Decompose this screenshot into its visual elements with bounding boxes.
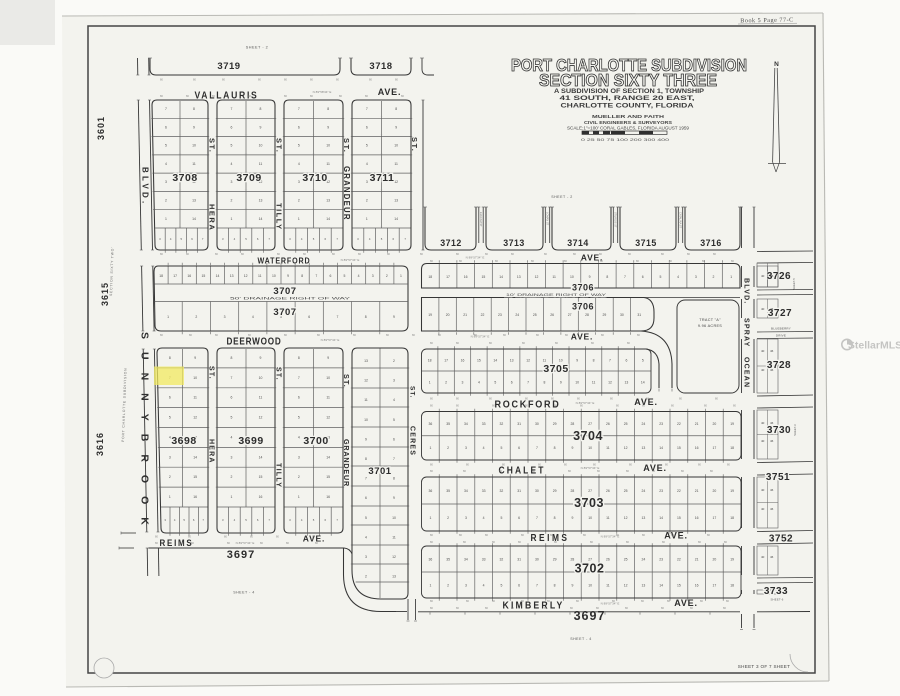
svg-text:5: 5	[366, 144, 368, 148]
svg-text:7: 7	[231, 376, 233, 380]
svg-text:4: 4	[298, 162, 300, 166]
svg-text:3710: 3710	[302, 172, 327, 184]
svg-text:···: ···	[245, 206, 248, 210]
svg-text:2: 2	[365, 575, 367, 579]
svg-text:29: 29	[553, 422, 557, 426]
svg-text:12: 12	[535, 275, 539, 279]
svg-text:6: 6	[231, 396, 233, 400]
svg-text:9: 9	[393, 315, 395, 319]
svg-text:···: ···	[245, 151, 248, 155]
svg-text:8: 8	[554, 516, 556, 520]
svg-text:25: 25	[624, 557, 628, 561]
svg-text:31: 31	[637, 313, 641, 317]
svg-text:···: ···	[245, 503, 248, 507]
svg-text:9: 9	[193, 125, 195, 129]
svg-text:ST.: ST.	[208, 138, 217, 153]
svg-text:3703: 3703	[574, 496, 604, 510]
svg-text:46: 46	[770, 421, 774, 425]
svg-text:10: 10	[588, 446, 592, 450]
svg-text:22: 22	[481, 313, 485, 317]
svg-text:1: 1	[165, 217, 167, 221]
svg-text:10: 10	[326, 144, 330, 148]
svg-text:3700: 3700	[303, 435, 328, 447]
svg-text:ST.: ST.	[409, 386, 416, 398]
svg-text:13: 13	[517, 275, 521, 279]
svg-text:32: 32	[500, 422, 504, 426]
svg-text:StellarMLS: StellarMLS	[848, 340, 900, 352]
svg-text:20: 20	[446, 313, 450, 317]
svg-text:8: 8	[554, 446, 556, 450]
svg-text:16: 16	[326, 495, 330, 499]
svg-text:16: 16	[695, 583, 699, 587]
svg-text:AVE.: AVE.	[643, 463, 667, 473]
svg-text:···: ···	[245, 188, 248, 192]
svg-text:15: 15	[482, 275, 486, 279]
svg-text:6: 6	[298, 125, 300, 129]
svg-text:11: 11	[606, 446, 610, 450]
svg-text:3: 3	[298, 180, 300, 184]
svg-text:16: 16	[193, 495, 197, 499]
svg-text:6: 6	[165, 125, 167, 129]
svg-text:17: 17	[713, 516, 717, 520]
svg-text:REIMS: REIMS	[160, 538, 194, 548]
svg-text:46: 46	[770, 488, 774, 492]
svg-text:12: 12	[364, 379, 368, 383]
svg-text:3708: 3708	[172, 172, 197, 184]
svg-text:31: 31	[517, 489, 521, 493]
svg-text:1: 1	[231, 495, 233, 499]
svg-text:SECTION SIXTY THREE: SECTION SIXTY THREE	[539, 70, 717, 90]
svg-text:12: 12	[624, 446, 628, 450]
svg-text:29: 29	[603, 313, 607, 317]
svg-text:11: 11	[606, 583, 610, 587]
svg-text:AVE.: AVE.	[674, 598, 698, 608]
svg-text:24: 24	[515, 313, 519, 317]
svg-text:6: 6	[518, 583, 520, 587]
svg-text:···: ···	[179, 224, 182, 228]
svg-text:23: 23	[659, 422, 663, 426]
svg-text:N 89°57'34" E: N 89°57'34" E	[236, 541, 255, 545]
svg-text:6: 6	[169, 396, 171, 400]
svg-text:40: 40	[761, 307, 765, 311]
svg-text:3: 3	[465, 583, 467, 587]
svg-text:36: 36	[429, 422, 433, 426]
svg-text:3705: 3705	[543, 363, 568, 375]
svg-text:9: 9	[571, 516, 573, 520]
svg-text:3711: 3711	[370, 172, 395, 184]
svg-text:10' DRAINAGE RIGHT OF WAY: 10' DRAINAGE RIGHT OF WAY	[506, 293, 607, 297]
svg-text:19: 19	[730, 557, 734, 561]
svg-text:21: 21	[463, 313, 467, 317]
svg-text:2: 2	[386, 274, 388, 278]
svg-text:4: 4	[231, 435, 233, 439]
svg-text:30: 30	[535, 557, 539, 561]
svg-text:22: 22	[677, 422, 681, 426]
svg-text:11: 11	[392, 535, 396, 539]
svg-text:4: 4	[478, 380, 480, 384]
svg-text:AVE.: AVE.	[378, 87, 402, 97]
svg-text:9.96 ACRES: 9.96 ACRES	[698, 324, 722, 328]
svg-text:8: 8	[606, 275, 608, 279]
svg-text:1: 1	[400, 274, 402, 278]
svg-text:18: 18	[730, 516, 734, 520]
svg-text:11: 11	[364, 398, 368, 402]
svg-text:N 89°58'34" E: N 89°58'34" E	[313, 90, 332, 94]
svg-text:ST.: ST.	[342, 138, 351, 153]
svg-text:3: 3	[231, 455, 233, 459]
svg-text:3: 3	[365, 555, 367, 559]
svg-text:13: 13	[364, 359, 368, 363]
svg-text:24: 24	[642, 489, 646, 493]
svg-text:9: 9	[560, 380, 562, 384]
svg-text:3719: 3719	[217, 61, 240, 72]
svg-text:23: 23	[498, 313, 502, 317]
svg-text:···: ···	[312, 503, 315, 507]
svg-text:16: 16	[464, 275, 468, 279]
svg-text:SHEET - 4: SHEET - 4	[570, 637, 592, 641]
svg-text:32: 32	[500, 489, 504, 493]
svg-text:18: 18	[428, 358, 432, 362]
svg-text:46: 46	[770, 368, 774, 372]
svg-text:1: 1	[429, 446, 431, 450]
svg-text:3730: 3730	[767, 425, 791, 436]
svg-text:25: 25	[533, 313, 537, 317]
svg-text:4: 4	[483, 583, 485, 587]
svg-text:5: 5	[494, 380, 496, 384]
svg-text:40: 40	[761, 274, 765, 278]
svg-text:1: 1	[298, 495, 300, 499]
svg-text:10: 10	[259, 144, 263, 148]
svg-text:46: 46	[770, 349, 774, 353]
svg-text:···: ···	[179, 114, 182, 118]
svg-text:···: ···	[312, 206, 315, 210]
svg-text:18: 18	[159, 274, 163, 278]
svg-text:4: 4	[365, 535, 367, 539]
svg-text:···: ···	[312, 483, 315, 487]
svg-text:15: 15	[202, 274, 206, 278]
svg-text:SHEET - 4: SHEET - 4	[233, 591, 255, 595]
svg-text:9: 9	[576, 358, 578, 362]
svg-text:3714: 3714	[567, 238, 589, 248]
svg-text:36: 36	[429, 557, 433, 561]
svg-text:···: ···	[312, 384, 315, 388]
svg-text:27: 27	[588, 422, 592, 426]
svg-text:···: ···	[181, 483, 184, 487]
svg-text:2: 2	[445, 380, 447, 384]
svg-text:14: 14	[326, 455, 330, 459]
svg-text:BLVD.: BLVD.	[743, 278, 750, 304]
svg-text:MUELLER AND FAITH: MUELLER AND FAITH	[592, 114, 665, 119]
svg-text:6: 6	[642, 275, 644, 279]
svg-text:26: 26	[606, 557, 610, 561]
svg-text:9: 9	[194, 356, 196, 360]
svg-text:10: 10	[588, 516, 592, 520]
svg-text:1: 1	[366, 217, 368, 221]
svg-text:A SUBDIVISION OF SECTION 1, TO: A SUBDIVISION OF SECTION 1, TOWNSHIP	[554, 88, 705, 95]
svg-text:46: 46	[770, 507, 774, 511]
svg-text:29: 29	[553, 557, 557, 561]
svg-text:···: ···	[312, 133, 315, 137]
svg-text:17: 17	[713, 583, 717, 587]
svg-text:3601: 3601	[96, 116, 106, 140]
svg-text:14: 14	[326, 217, 330, 221]
svg-text:46: 46	[770, 439, 774, 443]
svg-text:2: 2	[393, 359, 395, 363]
svg-text:3: 3	[165, 180, 167, 184]
svg-text:HERA: HERA	[208, 204, 217, 231]
svg-text:3: 3	[465, 516, 467, 520]
svg-text:10: 10	[392, 516, 396, 520]
svg-text:3706: 3706	[572, 283, 594, 293]
svg-text:11: 11	[394, 162, 398, 166]
svg-text:2: 2	[366, 199, 368, 203]
svg-text:8: 8	[395, 107, 397, 111]
svg-text:15: 15	[326, 475, 330, 479]
svg-text:3712: 3712	[440, 238, 462, 248]
svg-text:3: 3	[393, 379, 395, 383]
svg-text:3: 3	[169, 455, 171, 459]
svg-text:3701: 3701	[368, 466, 391, 477]
svg-text:SHEET-6: SHEET-6	[793, 424, 797, 436]
svg-text:4: 4	[252, 315, 254, 319]
svg-text:AVE.: AVE.	[664, 531, 688, 541]
svg-text:36: 36	[429, 489, 433, 493]
svg-text:13: 13	[510, 358, 514, 362]
svg-text:4: 4	[677, 275, 679, 279]
svg-text:7: 7	[315, 274, 317, 278]
svg-text:ST.: ST.	[410, 137, 419, 152]
svg-text:···: ···	[245, 463, 248, 467]
svg-text:8: 8	[231, 356, 233, 360]
svg-text:7: 7	[298, 376, 300, 380]
svg-text:23: 23	[659, 557, 663, 561]
svg-text:···: ···	[312, 188, 315, 192]
svg-text:8: 8	[193, 107, 195, 111]
svg-text:···: ···	[380, 224, 383, 228]
svg-text:1: 1	[730, 275, 732, 279]
svg-text:14: 14	[216, 274, 220, 278]
svg-text:11: 11	[259, 162, 263, 166]
svg-text:18: 18	[730, 583, 734, 587]
svg-text:9: 9	[287, 274, 289, 278]
svg-text:13: 13	[642, 516, 646, 520]
svg-text:14: 14	[641, 380, 645, 384]
svg-text:28: 28	[571, 422, 575, 426]
svg-text:3699: 3699	[238, 435, 263, 447]
svg-text:6: 6	[625, 358, 627, 362]
svg-text:2: 2	[169, 475, 171, 479]
svg-text:8: 8	[393, 477, 395, 481]
svg-text:6: 6	[393, 437, 395, 441]
svg-text:7: 7	[527, 380, 529, 384]
svg-text:35: 35	[446, 489, 450, 493]
svg-text:···: ···	[312, 404, 315, 408]
svg-text:12: 12	[259, 416, 263, 420]
svg-text:25: 25	[624, 422, 628, 426]
svg-text:10: 10	[575, 380, 579, 384]
svg-text:3: 3	[298, 455, 300, 459]
svg-text:CATALINA ST: CATALINA ST	[679, 212, 683, 229]
svg-text:11: 11	[592, 380, 596, 384]
svg-text:4: 4	[165, 162, 167, 166]
svg-text:5: 5	[298, 144, 300, 148]
svg-text:15: 15	[677, 446, 681, 450]
svg-text:7: 7	[624, 275, 626, 279]
svg-text:31: 31	[517, 557, 521, 561]
svg-text:7: 7	[298, 107, 300, 111]
svg-text:15: 15	[477, 358, 481, 362]
svg-text:7: 7	[393, 457, 395, 461]
svg-text:33: 33	[482, 489, 486, 493]
svg-text:32: 32	[500, 557, 504, 561]
svg-text:···: ···	[380, 133, 383, 137]
svg-text:5: 5	[500, 516, 502, 520]
svg-text:8: 8	[365, 315, 367, 319]
svg-text:41 SOUTH, RANGE 20 EAST,: 41 SOUTH, RANGE 20 EAST,	[560, 95, 695, 102]
svg-text:4: 4	[298, 435, 300, 439]
svg-text:N 89°57'34" E: N 89°57'34" E	[321, 338, 340, 342]
svg-text:7: 7	[536, 516, 538, 520]
svg-text:BLUEBERRY: BLUEBERRY	[771, 327, 791, 331]
svg-text:TILLY: TILLY	[275, 203, 284, 231]
svg-text:8: 8	[365, 457, 367, 461]
svg-text:10: 10	[326, 376, 330, 380]
svg-text:ST.: ST.	[342, 374, 351, 388]
svg-text:28: 28	[571, 489, 575, 493]
svg-text:···: ···	[245, 224, 248, 228]
svg-text:10: 10	[259, 376, 263, 380]
svg-text:28: 28	[585, 313, 589, 317]
svg-text:···: ···	[181, 404, 184, 408]
svg-text:30: 30	[535, 422, 539, 426]
svg-text:16: 16	[187, 274, 191, 278]
svg-text:3: 3	[372, 274, 374, 278]
svg-text:10: 10	[193, 376, 197, 380]
svg-text:3: 3	[231, 180, 233, 184]
svg-text:20: 20	[713, 489, 717, 493]
svg-text:14: 14	[193, 455, 197, 459]
svg-text:35: 35	[446, 422, 450, 426]
svg-text:12: 12	[392, 555, 396, 559]
svg-text:···: ···	[181, 463, 184, 467]
svg-text:7: 7	[336, 315, 338, 319]
svg-text:9: 9	[327, 356, 329, 360]
svg-text:16: 16	[695, 516, 699, 520]
svg-text:24: 24	[642, 422, 646, 426]
svg-text:14: 14	[259, 455, 263, 459]
svg-text:3: 3	[366, 180, 368, 184]
svg-text:4: 4	[358, 274, 360, 278]
svg-text:2: 2	[298, 199, 300, 203]
svg-text:SHEET - 2: SHEET - 2	[246, 46, 269, 50]
svg-text:2: 2	[165, 199, 167, 203]
svg-text:N 89°57'34" E: N 89°57'34" E	[601, 602, 620, 606]
svg-text:14: 14	[192, 217, 196, 221]
svg-text:26: 26	[606, 489, 610, 493]
svg-text:7: 7	[536, 446, 538, 450]
svg-text:6: 6	[329, 274, 331, 278]
svg-text:5: 5	[231, 144, 233, 148]
svg-text:3702: 3702	[575, 562, 605, 576]
svg-text:3718: 3718	[369, 61, 392, 72]
svg-text:3752: 3752	[769, 534, 793, 545]
svg-text:···: ···	[245, 384, 248, 388]
svg-text:8: 8	[298, 356, 300, 360]
svg-text:15: 15	[259, 475, 263, 479]
svg-text:CERES: CERES	[409, 426, 416, 456]
svg-text:3: 3	[462, 380, 464, 384]
svg-text:5: 5	[642, 358, 644, 362]
svg-text:2: 2	[447, 583, 449, 587]
svg-text:GRANDEUR: GRANDEUR	[342, 439, 351, 487]
svg-text:9: 9	[571, 583, 573, 587]
svg-text:···: ···	[179, 188, 182, 192]
svg-text:TRACT "A": TRACT "A"	[699, 318, 721, 322]
svg-text:21: 21	[695, 489, 699, 493]
svg-text:14: 14	[259, 217, 263, 221]
svg-text:27: 27	[588, 489, 592, 493]
svg-text:WATERFORD: WATERFORD	[258, 256, 311, 266]
svg-text:5: 5	[365, 516, 367, 520]
svg-text:26: 26	[550, 313, 554, 317]
svg-text:GRANDEUR: GRANDEUR	[342, 166, 351, 221]
svg-text:5: 5	[659, 275, 661, 279]
svg-text:11: 11	[258, 274, 262, 278]
svg-text:9: 9	[260, 356, 262, 360]
svg-text:11: 11	[193, 396, 197, 400]
svg-text:1: 1	[298, 217, 300, 221]
svg-text:2: 2	[231, 475, 233, 479]
svg-text:···: ···	[380, 206, 383, 210]
svg-text:22: 22	[677, 489, 681, 493]
svg-text:29: 29	[553, 489, 557, 493]
svg-text:40: 40	[761, 488, 765, 492]
svg-text:11: 11	[326, 162, 330, 166]
svg-text:4: 4	[483, 516, 485, 520]
svg-text:11: 11	[552, 275, 556, 279]
svg-text:OCEAN: OCEAN	[743, 357, 750, 388]
svg-text:3707: 3707	[273, 286, 296, 297]
svg-text:AVE.: AVE.	[571, 332, 593, 342]
svg-text:5: 5	[344, 274, 346, 278]
svg-text:34: 34	[464, 557, 468, 561]
svg-text:ST.: ST.	[208, 366, 215, 380]
svg-text:4: 4	[483, 446, 485, 450]
svg-text:8: 8	[554, 583, 556, 587]
svg-text:CHALET: CHALET	[499, 466, 546, 477]
svg-text:···: ···	[245, 424, 248, 428]
svg-text:DRIVE: DRIVE	[776, 334, 786, 338]
svg-text:N: N	[774, 61, 779, 68]
svg-text:CHARLOTTE COUNTY, FLORIDA: CHARLOTTE COUNTY, FLORIDA	[561, 103, 695, 110]
svg-text:3: 3	[224, 315, 226, 319]
svg-text:TILLY: TILLY	[275, 463, 284, 488]
svg-text:31: 31	[517, 422, 521, 426]
svg-text:13: 13	[230, 274, 234, 278]
svg-text:16: 16	[461, 358, 465, 362]
svg-text:21: 21	[695, 422, 699, 426]
svg-text:···: ···	[245, 364, 248, 368]
svg-text:12: 12	[394, 180, 398, 184]
svg-text:9: 9	[395, 125, 397, 129]
svg-text:18: 18	[428, 275, 432, 279]
svg-text:10: 10	[394, 144, 398, 148]
svg-text:6: 6	[365, 496, 367, 500]
svg-text:N 89°57'34" E: N 89°57'34" E	[466, 256, 485, 260]
svg-text:6: 6	[518, 516, 520, 520]
svg-text:7: 7	[365, 477, 367, 481]
svg-text:12: 12	[193, 416, 197, 420]
